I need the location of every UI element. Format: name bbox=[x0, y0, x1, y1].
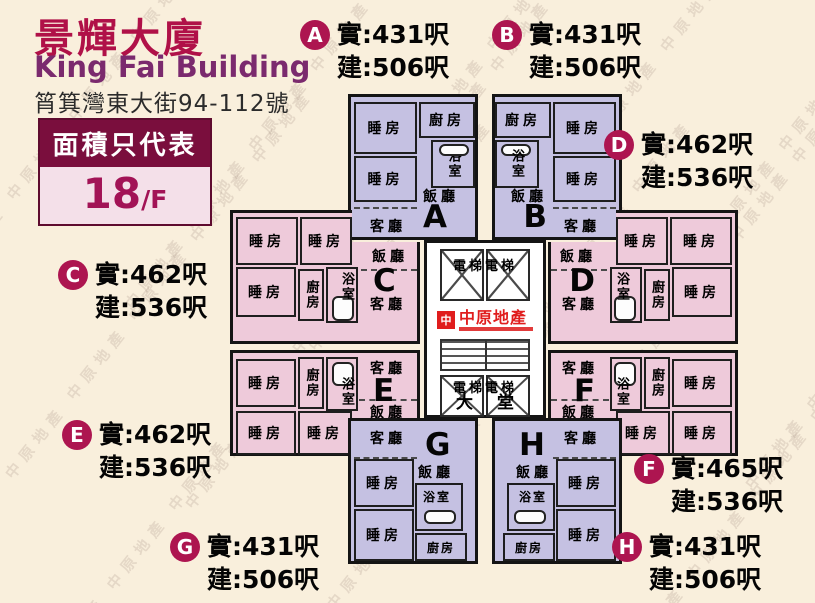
unit-h-letter: H bbox=[519, 427, 545, 463]
unit-g-plan: 客廳 G 飯廳 睡房 浴室 睡房 廚房 bbox=[348, 418, 478, 564]
room-label: 睡房 bbox=[248, 282, 284, 302]
unit-b-living: 客廳 bbox=[551, 217, 613, 235]
room-label: 睡房 bbox=[368, 118, 404, 138]
room-label: 睡房 bbox=[307, 423, 343, 443]
room-label: 廚房 bbox=[648, 280, 667, 310]
room-label: 睡房 bbox=[684, 423, 720, 443]
unit-d-kitchen: 廚房 bbox=[644, 269, 670, 321]
centaline-logo: 中 中原地產 bbox=[429, 305, 541, 335]
room-label: 睡房 bbox=[366, 525, 402, 545]
centaline-logo-text: 中原地產 bbox=[459, 309, 527, 326]
unit-d-bedroom-2: 睡房 bbox=[616, 217, 668, 265]
legend-unit-c: C 實:462呎 建:536呎 bbox=[58, 258, 207, 324]
room-label: 浴室 bbox=[423, 488, 451, 505]
floor-number-suffix: /F bbox=[141, 185, 167, 214]
room-label: 睡房 bbox=[368, 169, 404, 189]
floorplan-page: 中原地產 中原地產 中原地產 中原地產 中原地產 中原地產 中原地產 中原地產 … bbox=[0, 0, 815, 603]
unit-b-plan: 睡房 睡房 廚房 浴室 飯廳 客廳 B bbox=[492, 94, 622, 240]
room-label: 浴室 bbox=[337, 377, 356, 407]
room-label: 睡房 bbox=[683, 231, 719, 251]
room-label: 睡房 bbox=[684, 282, 720, 302]
building-address: 筲箕灣東大街94-112號 bbox=[34, 84, 289, 118]
unit-h-kitchen: 廚房 bbox=[503, 533, 555, 561]
elevator-label: 電梯電梯 bbox=[440, 255, 530, 274]
unit-c-bedroom-1: 睡房 bbox=[236, 217, 298, 265]
room-label: 飯廳 bbox=[516, 462, 552, 482]
centaline-logo-mark: 中 bbox=[437, 311, 455, 329]
legend-unit-b: B 實:431呎 建:506呎 bbox=[492, 18, 641, 84]
unit-f-bathroom: 浴室 bbox=[610, 357, 642, 411]
staircase-divider bbox=[485, 341, 487, 369]
unit-e-gross-area: 建:536呎 bbox=[99, 451, 211, 484]
unit-a-living: 客廳 bbox=[357, 217, 419, 235]
unit-f-saleable-area: 實:465呎 bbox=[671, 452, 783, 485]
unit-e-badge: E bbox=[62, 420, 92, 450]
unit-a-badge: A bbox=[300, 20, 330, 50]
unit-b-letter: B bbox=[523, 199, 547, 235]
room-label: 廚房 bbox=[302, 280, 321, 310]
unit-b-bathroom: 浴室 bbox=[495, 140, 539, 188]
unit-d-letter: D bbox=[569, 263, 595, 299]
unit-e-saleable-area: 實:462呎 bbox=[99, 418, 211, 451]
room-label: 睡房 bbox=[625, 423, 661, 443]
unit-f-letter: F bbox=[574, 373, 595, 409]
room-label: 睡房 bbox=[308, 231, 344, 251]
unit-h-bathroom: 浴室 bbox=[507, 483, 555, 531]
room-label: 睡房 bbox=[567, 118, 603, 138]
unit-c-bedroom-2: 睡房 bbox=[300, 217, 352, 265]
unit-a-plan: 睡房 睡房 廚房 浴室 飯廳 客廳 A bbox=[348, 94, 478, 240]
floor-notice-caption: 面積只代表 bbox=[40, 120, 210, 167]
bathtub bbox=[514, 510, 546, 524]
unit-c-gross-area: 建:536呎 bbox=[95, 291, 207, 324]
unit-a-gross-area: 建:506呎 bbox=[337, 51, 449, 84]
unit-g-bedroom-1: 睡房 bbox=[354, 459, 414, 507]
unit-c-bedroom-3: 睡房 bbox=[236, 267, 296, 317]
room-label: 睡房 bbox=[248, 423, 284, 443]
unit-c-letter: C bbox=[373, 263, 396, 299]
unit-f-kitchen: 廚房 bbox=[644, 357, 670, 409]
unit-g-bathroom: 浴室 bbox=[415, 483, 463, 531]
elevator-bank-upper: 電梯電梯 bbox=[440, 249, 530, 301]
unit-g-saleable-area: 實:431呎 bbox=[207, 530, 319, 563]
unit-h-bedroom-1: 睡房 bbox=[556, 459, 616, 507]
legend-unit-a: A 實:431呎 建:506呎 bbox=[300, 18, 449, 84]
building-name-en: King Fai Building bbox=[34, 50, 310, 84]
floor-notice-box: 面積只代表 18/F bbox=[38, 118, 212, 226]
unit-d-bedroom-3: 睡房 bbox=[672, 267, 732, 317]
unit-e-kitchen: 廚房 bbox=[298, 357, 324, 409]
unit-a-letter: A bbox=[423, 199, 447, 235]
unit-c-badge: C bbox=[58, 260, 88, 290]
unit-g-bedroom-2: 睡房 bbox=[354, 509, 414, 561]
room-label: 廚房 bbox=[427, 539, 455, 556]
unit-g-badge: G bbox=[170, 532, 200, 562]
unit-h-saleable-area: 實:431呎 bbox=[649, 530, 761, 563]
floor-number: 18/F bbox=[40, 167, 210, 224]
room-label: 睡房 bbox=[567, 169, 603, 189]
room-label: 浴室 bbox=[612, 272, 631, 302]
room-label: 廚房 bbox=[648, 368, 667, 398]
unit-g-gross-area: 建:506呎 bbox=[207, 563, 319, 596]
legend-unit-d: D 實:462呎 建:536呎 bbox=[604, 128, 753, 194]
unit-g-living: 客廳 bbox=[359, 429, 417, 447]
unit-a-saleable-area: 實:431呎 bbox=[337, 18, 449, 51]
bathtub bbox=[424, 510, 456, 524]
partition-dashed bbox=[553, 207, 616, 209]
unit-h-gross-area: 建:506呎 bbox=[649, 563, 761, 596]
unit-h-badge: H bbox=[612, 532, 642, 562]
unit-f-gross-area: 建:536呎 bbox=[671, 485, 783, 518]
room-label: 廚房 bbox=[515, 539, 543, 556]
room-label: 客廳 bbox=[370, 428, 406, 448]
unit-d-bedroom-1: 睡房 bbox=[670, 217, 732, 265]
staircase bbox=[440, 339, 530, 371]
room-label: 廚房 bbox=[429, 110, 465, 130]
room-label: 睡房 bbox=[568, 525, 604, 545]
room-label: 飯廳 bbox=[418, 462, 454, 482]
unit-c-bathroom: 浴室 bbox=[326, 267, 358, 323]
room-label: 浴室 bbox=[612, 377, 631, 407]
building-core: 電梯電梯 中 中原地產 電梯電梯 大堂 bbox=[424, 240, 546, 418]
unit-e-bathroom: 浴室 bbox=[326, 357, 358, 411]
unit-d-badge: D bbox=[604, 130, 634, 160]
room-label: 廚房 bbox=[302, 368, 321, 398]
unit-a-bathroom: 浴室 bbox=[431, 140, 475, 188]
floor-number-value: 18 bbox=[83, 169, 141, 218]
room-label: 浴室 bbox=[519, 488, 547, 505]
unit-b-gross-area: 建:506呎 bbox=[529, 51, 641, 84]
unit-g-letter: G bbox=[425, 427, 450, 463]
partition-dashed bbox=[354, 207, 417, 209]
unit-b-badge: B bbox=[492, 20, 522, 50]
unit-f-bedroom-2: 睡房 bbox=[672, 411, 732, 455]
room-label: 睡房 bbox=[684, 373, 720, 393]
unit-f-badge: F bbox=[634, 454, 664, 484]
room-label: 廚房 bbox=[505, 110, 541, 130]
unit-a-kitchen: 廚房 bbox=[419, 102, 475, 138]
room-label: 睡房 bbox=[568, 473, 604, 493]
room-label: 客廳 bbox=[564, 428, 600, 448]
centaline-logo-bar bbox=[459, 327, 533, 331]
unit-b-saleable-area: 實:431呎 bbox=[529, 18, 641, 51]
room-label: 睡房 bbox=[248, 373, 284, 393]
room-label: 客廳 bbox=[564, 216, 600, 236]
unit-f-bedroom-1: 睡房 bbox=[672, 359, 732, 407]
unit-e-letter: E bbox=[373, 373, 394, 409]
unit-g-kitchen: 廚房 bbox=[415, 533, 467, 561]
room-label: 浴室 bbox=[508, 149, 527, 179]
unit-a-bedroom-1: 睡房 bbox=[354, 102, 417, 154]
unit-d-bathroom: 浴室 bbox=[610, 267, 642, 323]
elevator-label: 電梯電梯 bbox=[440, 377, 530, 396]
unit-h-bedroom-2: 睡房 bbox=[556, 509, 616, 561]
legend-unit-e: E 實:462呎 建:536呎 bbox=[62, 418, 211, 484]
legend-unit-g: G 實:431呎 建:506呎 bbox=[170, 530, 319, 596]
room-label: 睡房 bbox=[624, 231, 660, 251]
unit-e-bedroom-3: 睡房 bbox=[298, 411, 352, 455]
legend-unit-f: F 實:465呎 建:536呎 bbox=[634, 452, 783, 518]
room-label: 睡房 bbox=[366, 473, 402, 493]
room-label: 睡房 bbox=[249, 231, 285, 251]
unit-d-gross-area: 建:536呎 bbox=[641, 161, 753, 194]
room-label: 浴室 bbox=[337, 272, 356, 302]
legend-unit-h: H 實:431呎 建:506呎 bbox=[612, 530, 761, 596]
unit-e-bedroom-1: 睡房 bbox=[236, 359, 296, 407]
unit-h-plan: 客廳 H 飯廳 睡房 浴室 睡房 廚房 bbox=[492, 418, 622, 564]
unit-c-saleable-area: 實:462呎 bbox=[95, 258, 207, 291]
bathtub bbox=[439, 144, 469, 156]
unit-f-bedroom-3: 睡房 bbox=[616, 411, 670, 455]
unit-h-living: 客廳 bbox=[553, 429, 611, 447]
room-label: 客廳 bbox=[370, 216, 406, 236]
unit-b-kitchen: 廚房 bbox=[495, 102, 551, 138]
unit-e-bedroom-2: 睡房 bbox=[236, 411, 296, 455]
unit-c-kitchen: 廚房 bbox=[298, 269, 324, 321]
unit-d-saleable-area: 實:462呎 bbox=[641, 128, 753, 161]
